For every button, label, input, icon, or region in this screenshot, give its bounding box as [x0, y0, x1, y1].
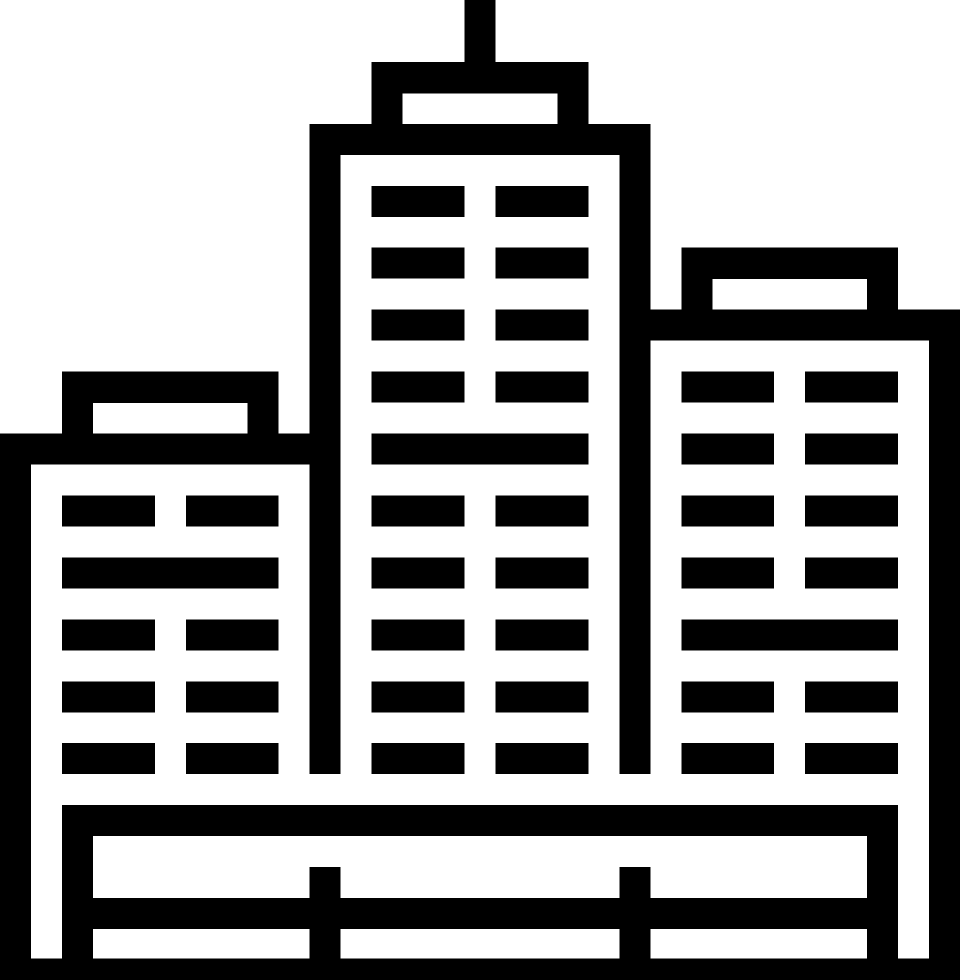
- left-window: [62, 619, 155, 650]
- center-window: [372, 496, 465, 527]
- center-window: [372, 619, 465, 650]
- center-wall-left: [310, 155, 341, 774]
- city-buildings-svg: [0, 0, 960, 980]
- center-window: [372, 743, 465, 774]
- center-window: [372, 681, 465, 712]
- center-window: [496, 372, 589, 403]
- right-window: [805, 372, 898, 403]
- right-roof-band: [650, 310, 960, 341]
- left-window: [186, 681, 279, 712]
- city-buildings-icon: [0, 0, 960, 980]
- center-window: [496, 557, 589, 588]
- center-window: [496, 496, 589, 527]
- center-window: [372, 248, 465, 279]
- right-window: [681, 372, 774, 403]
- left-window: [62, 743, 155, 774]
- left-window: [186, 619, 279, 650]
- left-window: [186, 496, 279, 527]
- right-cap-side-right: [867, 279, 898, 311]
- right-cap-top: [681, 248, 898, 280]
- right-window: [681, 681, 774, 712]
- center-full-floor: [372, 434, 589, 465]
- center-cap-side-right: [557, 93, 588, 125]
- center-window: [496, 743, 589, 774]
- left-cap-top: [62, 372, 279, 404]
- right-window: [681, 496, 774, 527]
- right-wall-outer: [929, 341, 960, 980]
- base-mid-rail: [93, 898, 867, 929]
- left-window: [62, 496, 155, 527]
- right-window: [805, 496, 898, 527]
- left-cap-side-right: [248, 403, 279, 435]
- left-wall-outer: [0, 465, 31, 980]
- left-cap-side-left: [62, 403, 93, 435]
- right-window: [805, 434, 898, 465]
- right-window: [805, 743, 898, 774]
- center-roof-band: [310, 124, 651, 155]
- center-window: [496, 186, 589, 217]
- base-top-rail: [62, 805, 898, 836]
- right-window: [805, 681, 898, 712]
- right-full-floor: [681, 619, 898, 650]
- center-window: [496, 619, 589, 650]
- left-roof-band: [0, 434, 310, 465]
- center-window: [372, 186, 465, 217]
- base-ground-band: [0, 959, 960, 980]
- center-wall-right: [619, 155, 650, 774]
- center-window: [496, 681, 589, 712]
- right-window: [681, 557, 774, 588]
- center-window: [372, 310, 465, 341]
- center-window: [496, 310, 589, 341]
- left-full-floor: [62, 557, 279, 588]
- left-window: [186, 743, 279, 774]
- center-cap-top: [372, 62, 589, 94]
- right-cap-side-left: [681, 279, 712, 311]
- center-window: [372, 557, 465, 588]
- center-cap-side-left: [372, 93, 403, 125]
- right-window: [681, 434, 774, 465]
- center-window: [496, 248, 589, 279]
- center-window: [372, 372, 465, 403]
- base-post-right: [867, 836, 898, 960]
- right-window: [681, 743, 774, 774]
- right-window: [805, 557, 898, 588]
- base-post-left: [62, 836, 93, 960]
- antenna: [465, 0, 496, 63]
- left-window: [62, 681, 155, 712]
